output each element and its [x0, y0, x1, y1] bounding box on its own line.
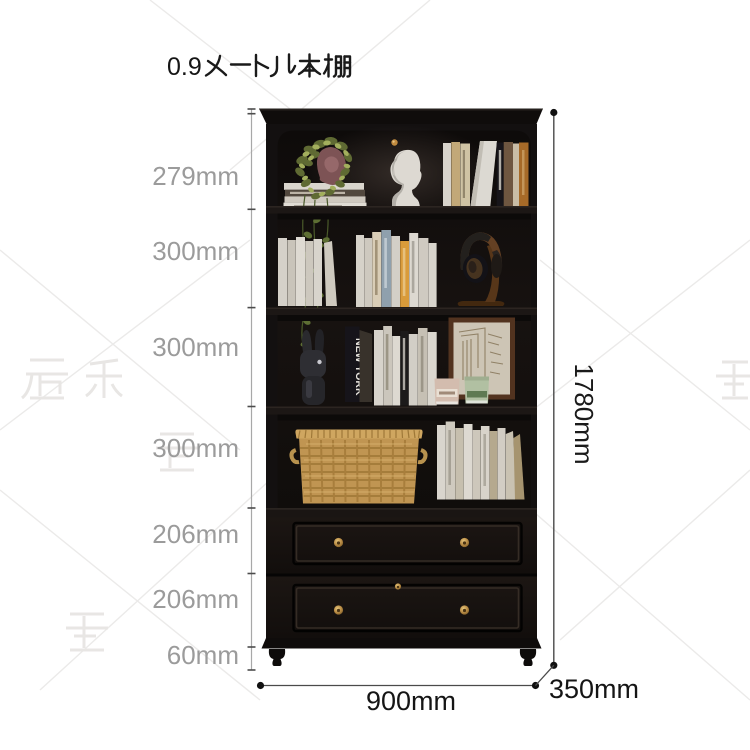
svg-text:60mm: 60mm [167, 640, 239, 670]
svg-text:206mm: 206mm [152, 519, 239, 549]
svg-text:350mm: 350mm [549, 674, 639, 704]
svg-text:1780mm: 1780mm [569, 363, 599, 464]
svg-text:300mm: 300mm [152, 332, 239, 362]
svg-text:900mm: 900mm [366, 686, 456, 716]
svg-text:206mm: 206mm [152, 584, 239, 614]
svg-text:300mm: 300mm [152, 236, 239, 266]
svg-text:0.9: 0.9 [167, 53, 202, 81]
svg-text:279mm: 279mm [152, 161, 239, 191]
svg-text:300mm: 300mm [152, 433, 239, 463]
